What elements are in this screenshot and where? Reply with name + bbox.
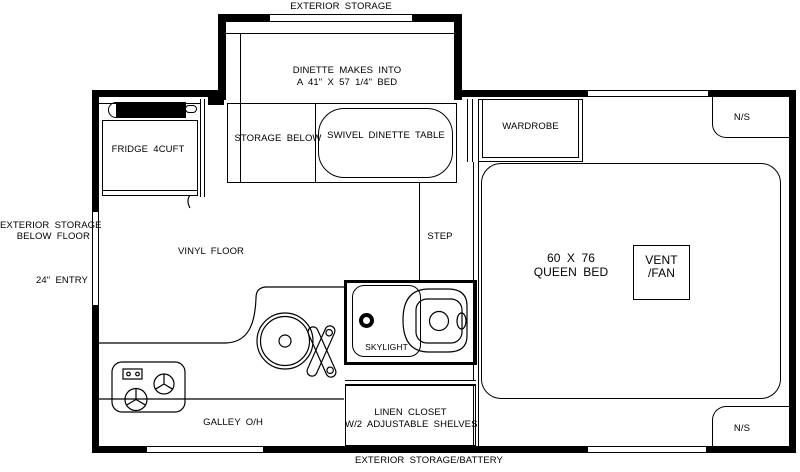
wall-left-bottom	[92, 305, 99, 453]
fridge-label: FRIDGE 4CUFT	[100, 144, 196, 155]
interior-wall-upper	[467, 99, 473, 162]
window-top	[588, 90, 708, 97]
dinette-bench-back-line	[226, 33, 454, 34]
dinette-label-line2: A 41" X 57 1/4" BED	[247, 77, 447, 88]
fridge-box	[102, 120, 198, 196]
nightstand-top-label: N/S	[712, 112, 772, 123]
slideout-wall-top-left	[218, 14, 270, 22]
galley-overhead-label: GALLEY O/H	[183, 417, 283, 428]
queen-bed-label-line1: 60 X 76	[491, 251, 651, 265]
camper-floorplan: EXTERIOR STORAGE DINETTE MAKES INTO A 41…	[0, 0, 800, 472]
wardrobe-label: WARDROBE	[479, 121, 582, 132]
fridge-divider-wall	[200, 99, 205, 197]
wall-right	[789, 90, 796, 453]
exterior-storage-top-label: EXTERIOR STORAGE	[261, 1, 421, 12]
faucet-fixture	[305, 324, 337, 378]
window-bottom	[588, 446, 706, 453]
storage-below-label: STORAGE BELOW	[228, 133, 328, 144]
wall-bottom-right	[706, 446, 796, 453]
fridge-vent-bar	[116, 102, 186, 118]
vinyl-floor-label: VINYL FLOOR	[161, 246, 261, 257]
counter-edge	[99, 287, 344, 343]
skylight-label: SKYLIGHT	[349, 342, 424, 353]
swivel-dinette-table	[318, 108, 453, 178]
wall-top-left	[92, 90, 218, 97]
slideout-storage-door	[270, 14, 412, 22]
queen-bed-label-line2: QUEEN BED	[491, 265, 651, 279]
nightstand-bottom-label: N/S	[712, 423, 772, 434]
linen-closet-label-line2: W/2 ADJUSTABLE SHELVES	[345, 419, 476, 430]
queen-bed	[481, 163, 781, 399]
linen-closet-label-line1: LINEN CLOSET	[345, 407, 476, 418]
vent-fan-label-line2: /FAN	[633, 266, 690, 280]
wall-bottom-mid	[263, 446, 588, 453]
stove-fixture	[112, 362, 185, 412]
vent-fan-label-line1: VENT	[633, 253, 690, 267]
step-label: STEP	[410, 231, 470, 242]
door-latch	[188, 195, 190, 208]
entry-label: 24" ENTRY	[0, 275, 88, 286]
dinette-label-line1: DINETTE MAKES INTO	[247, 65, 447, 76]
exterior-storage-below-floor-label-line1: EXTERIOR STORAGE	[0, 220, 90, 231]
wall-left-top	[92, 90, 99, 212]
wall-top-mid	[462, 90, 588, 97]
wall-bottom-left	[92, 446, 147, 453]
slideout-wall-left	[218, 14, 226, 100]
sink-fixture	[257, 313, 313, 369]
fridge-vent-handle	[185, 105, 197, 113]
wall-top-right	[708, 90, 796, 97]
exterior-storage-below-floor-label-line2: BELOW FLOOR	[0, 231, 90, 242]
drain-icon	[359, 313, 374, 328]
exterior-storage-battery-label: EXTERIOR STORAGE/BATTERY	[329, 455, 529, 466]
wall-corner-stub	[208, 90, 224, 105]
fridge-inner-line	[103, 190, 197, 191]
storage-battery-door	[147, 446, 263, 453]
slideout-wall-right	[454, 14, 462, 100]
swivel-table-label: SWIVEL DINETTE TABLE	[316, 130, 456, 141]
